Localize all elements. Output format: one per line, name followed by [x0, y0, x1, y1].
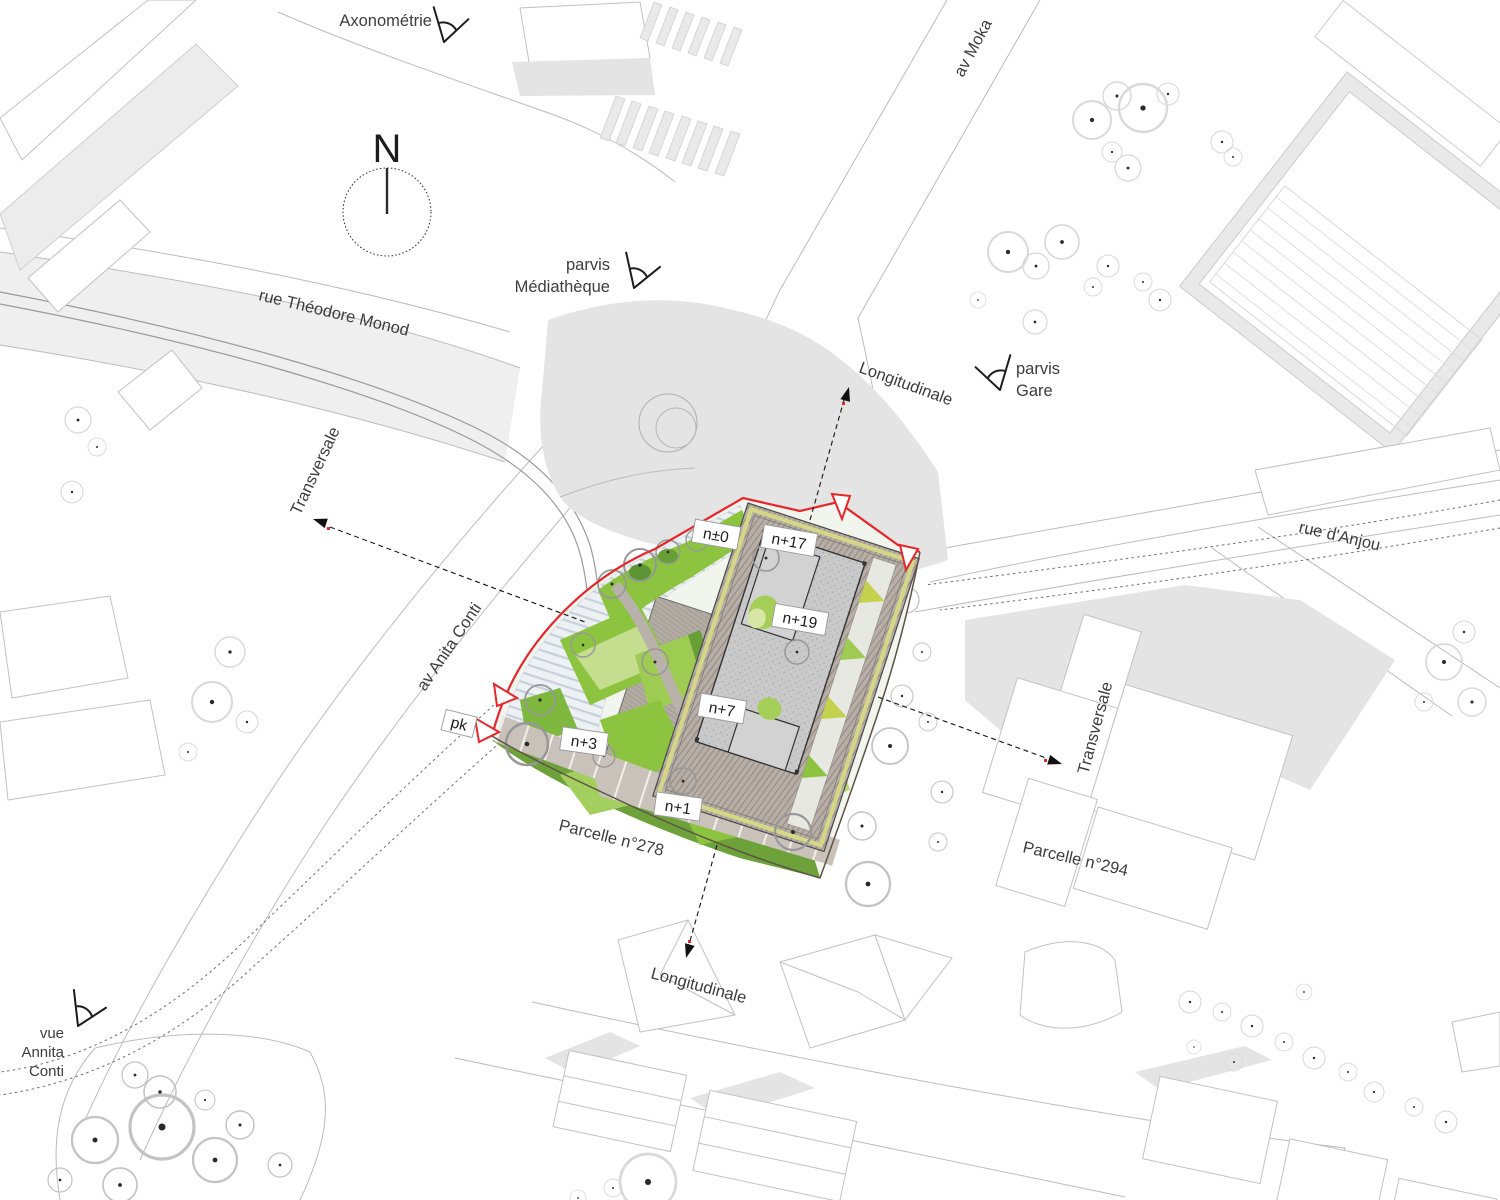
site-plan-drawing: N Longitudinale Longitudinale Transversa… — [0, 0, 1500, 1200]
view-label-mediatheque: Médiathèque — [515, 278, 610, 296]
view-label-conti: Conti — [29, 1063, 64, 1080]
view-marker-vue-annita-conti: vue Annita Conti — [21, 990, 108, 1080]
trees-bottom-left — [48, 1034, 325, 1200]
view-marker-axonometrie: Axonométrie — [339, 7, 469, 45]
street-label-av-moka: av Moka — [951, 16, 997, 80]
view-marker-parvis-gare: parvis Gare — [975, 355, 1060, 400]
building-top-right — [1143, 1, 1500, 454]
site-plan-canvas: N Longitudinale Longitudinale Transversa… — [0, 0, 1500, 1200]
street-label-av-anita-conti: av Anita Conti — [413, 600, 485, 694]
parking-tag-pk: pk — [441, 709, 477, 737]
buildings-left-middle — [0, 596, 165, 800]
view-label-annita: Annita — [21, 1044, 64, 1061]
view-cone-icon — [64, 990, 108, 1033]
view-marker-parvis-mediatheque: parvis Médiathèque — [515, 253, 662, 296]
view-label-axonometrie: Axonométrie — [339, 12, 432, 30]
view-cone-icon — [975, 355, 1015, 393]
svg-text:n+1: n+1 — [664, 798, 692, 818]
buildings-bottom — [545, 920, 1500, 1200]
view-label-parvis-gare-1: parvis — [1016, 360, 1060, 378]
view-label-parvis-gare-2: Gare — [1016, 382, 1053, 400]
view-cone-icon — [429, 7, 469, 45]
svg-text:n+3: n+3 — [570, 733, 598, 753]
view-cone-icon — [619, 253, 661, 293]
buildings-top-center — [512, 2, 742, 176]
street-label-rue-danjou: rue d'Anjou — [1297, 518, 1382, 554]
view-label-vue: vue — [40, 1025, 64, 1042]
trees-right-edge — [1415, 621, 1486, 716]
north-label: N — [373, 127, 402, 171]
section-label-transversale-left: Transversale — [287, 424, 343, 517]
view-label-parvis: parvis — [566, 256, 610, 274]
trees-left — [61, 407, 258, 761]
north-arrow: N — [343, 127, 431, 256]
